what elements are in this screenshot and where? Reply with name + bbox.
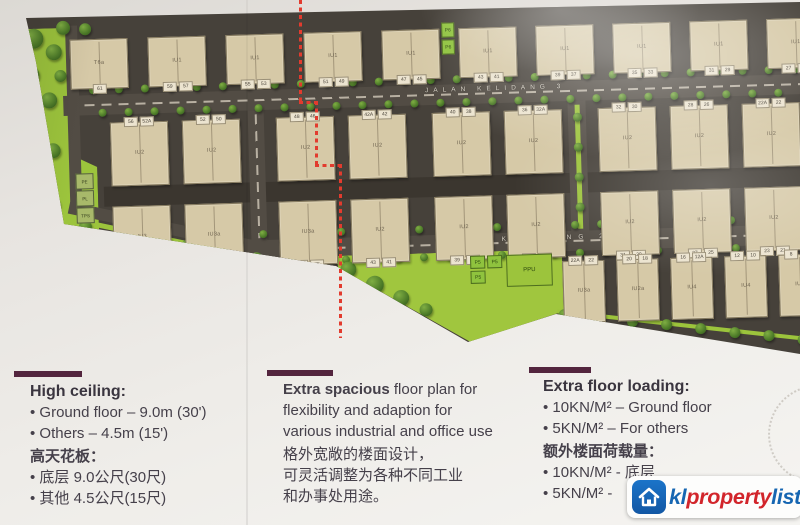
wm-list: list [771,485,800,509]
lot-number: 40 [446,107,460,117]
info-block-spacious: Extra spacious floor plan for flexibilit… [283,379,535,507]
lot-number: 29 [720,65,734,75]
lot-number: 32 [612,102,626,112]
lot-number: 49 [216,262,230,272]
building-unit: IU23937 [434,195,494,261]
lot-number: 42A [362,110,376,120]
median-tree [575,202,584,211]
median-tree [572,112,581,121]
phase-boundary-line [299,0,302,103]
lot-number: 22 [771,98,785,108]
roadside-tree [415,225,423,233]
building-unit: IU14341 [458,26,517,78]
roadside-tree [592,94,600,102]
lot-number: 39 [551,70,565,80]
building-unit: T6a61 [69,38,128,90]
boundary-tree [318,264,331,277]
p5-box: P5 [470,271,485,284]
lot-number-tags: 5149 [200,262,230,273]
phase-boundary-line [339,164,342,338]
building-unit: IU22826 [670,104,730,170]
lot-number-tags: 5553 [128,264,158,275]
building-unit: IU25652A [110,121,170,187]
lot-number: 33 [643,67,657,77]
roadside-tree [670,92,678,100]
park-tree [45,143,60,158]
building-type-label: IU3a [564,287,604,294]
roadside-tree [375,77,383,85]
lot-number: 52 [196,115,210,125]
building-type-label: IU1 [768,38,800,46]
accent-bar [529,367,591,373]
median-tree [573,142,582,151]
lot-number: 16 [676,252,690,262]
lot-number-tags: 22A22 [755,98,785,109]
lot-number: 51 [200,263,214,273]
roadside-tree [150,107,158,115]
lot-number-tags: 4341 [366,257,396,268]
building-unit: IU22725 [672,188,732,254]
lot-number: 22A [755,98,769,108]
lot-number: 30 [627,102,641,112]
park-tree [83,231,95,243]
lot-number-tags: 1210 [730,250,760,261]
building-unit: IU13937 [535,24,594,76]
building-unit: IU23230 [598,106,658,172]
accent-bar [267,370,333,376]
lot-number: 26 [699,100,713,110]
lot-number-tags: 4341 [474,72,504,83]
building-type-label: IU2 [184,147,240,155]
building-type-label: IU2 [506,137,562,145]
lot-number: 45 [310,259,324,269]
roadside-tree [141,84,149,92]
high-ceiling-cn-line: • 其他 4.5公尺(15尺) [30,488,270,509]
lot-number: 42 [378,109,392,119]
lot-number-tags: 3632A [518,105,548,116]
building-type-label: IU1 [460,48,516,56]
lot-number: 12 [730,251,744,261]
building-unit: IU41612A [670,257,714,320]
lot-number-tags: 42A42 [362,109,392,120]
klpropertylist-watermark: klpropertylist [627,476,800,518]
building-type-label: IU1 [305,52,361,60]
lot-number: 47 [294,260,308,270]
building-type-label: IU1 [227,54,283,62]
roadside-tree [332,102,340,110]
building-unit: IU2a2018 [616,258,660,321]
lot-number: 8 [784,249,798,259]
floor-loading-cn-title: 额外楼面荷载量： [543,441,793,462]
building-unit: IU15957 [147,36,206,88]
roadside-tree [696,91,704,99]
building-type-label: IU2 [508,221,564,229]
lot-number: 51 [319,77,333,87]
lot-number: 45 [413,74,427,84]
building-type-label: IU3 [114,233,170,241]
roadside-tree [98,109,106,117]
lot-number: 35 [627,68,641,78]
spacious-line: Extra spacious floor plan for [283,379,535,400]
roadside-tree [384,100,392,108]
lot-number: 37 [567,70,581,80]
lot-number-tags: 4745 [397,74,427,85]
floor-loading-line: • 5KN/M² – For others [543,418,793,439]
green-pocket-box: P6 [441,22,454,37]
building-unit: IU13533 [612,22,671,74]
lot-number-tags: 3533 [627,67,657,78]
spacious-rest: floor plan for [390,381,478,398]
roadside-tree [774,89,782,97]
lot-number: 18 [638,254,652,264]
building-unit: IU35553 [112,205,172,271]
roadside-tree [228,105,236,113]
park-tree [29,168,46,185]
lot-number-tags: 86 [784,249,800,260]
high-ceiling-line: • Others – 4.5m (15') [30,423,270,444]
building-type-label: IU2 [599,134,655,142]
high-ceiling-line: • Ground floor – 9.0m (30') [30,402,270,423]
building-type-label: IU3a [186,231,242,239]
lot-number-tags: 1612A [676,252,706,263]
boundary-tree [283,258,296,271]
park-tree [21,66,40,85]
building-type-label: IU2 [434,139,490,147]
roadside-tree [748,89,756,97]
building-unit: IU41210 [724,255,768,318]
building-unit: IU3a22A22 [562,260,606,323]
building-unit: IU15553 [225,33,284,85]
green-pocket-box: P6 [442,39,455,54]
lot-number: 53 [144,264,158,274]
spacious-line: various industrial and office use [283,421,535,442]
spacious-cn-line: 和办事处用途。 [283,486,535,507]
floor-loading-title: Extra floor loading: [543,376,793,397]
lot-number: 48 [290,112,304,122]
boundary-tree [249,252,262,265]
lot-number-tags: 2018 [622,254,652,265]
lot-number: 57 [179,81,193,91]
roadside-tree [410,99,418,107]
building-type-label: IU1 [614,43,670,51]
floor-loading-line: • 10KN/M² – Ground floor [543,397,793,418]
lot-number: 43 [474,72,488,82]
lot-number-tags: 4745 [294,259,324,270]
lot-number: 27 [781,63,795,73]
park-tree [34,219,48,233]
roadside-tree [618,93,626,101]
building-type-label: IU3a [280,228,336,236]
p5-box: P5 [487,255,502,268]
lot-number-tags: 3230 [612,102,642,113]
lot-number: 36 [518,105,532,115]
roadside-tree [722,90,730,98]
building-unit: IU242A42 [348,114,408,180]
building-unit: IU15149 [303,31,362,83]
roadside-tree [358,101,366,109]
boundary-tree [660,319,671,330]
lot-number: 59 [163,82,177,92]
building-type-label: IU1 [149,57,205,65]
park-facility-box: PL [76,190,94,207]
lot-number: 41 [490,72,504,82]
building-type-label: IU2 [436,223,492,231]
building-divider [141,209,144,267]
lot-number: 12A [692,252,706,262]
building-unit: IU24341 [350,198,410,264]
boundary-tree [763,330,774,341]
building-type-label: IU2 [746,214,800,222]
building-type-label: IU2 [352,226,408,234]
roadside-tree [493,223,501,231]
lot-number: 22A [568,256,582,266]
building-unit: IU23533 [506,193,566,259]
lot-number: 43 [366,258,380,268]
spacious-bold: Extra spacious [283,381,390,398]
lot-number: 61 [93,84,107,94]
lot-number-tags: 5250 [196,114,226,125]
park-tree [45,197,60,212]
high-ceiling-cn-title: 高天花板： [30,446,270,467]
lot-number: 50 [212,114,226,124]
info-block-high-ceiling: High ceiling: • Ground floor – 9.0m (30'… [30,381,270,509]
building-type-label: IU2a [618,285,658,292]
building-unit: IU24038 [432,111,492,177]
building-type-label: IU4 [780,281,800,288]
roadside-tree [280,103,288,111]
building-type-label: IU1 [537,45,593,53]
lot-number: 55 [128,265,142,275]
park-facility-box: TPS [76,207,94,224]
roadside-tree [124,108,132,116]
building-type-label: IU2 [743,130,799,138]
boundary-tree [695,323,706,334]
p5-box: P5 [470,256,485,269]
lot-number-tags: 5149 [319,76,349,87]
brochure-fold-crease [246,0,248,525]
building-unit: IU486 [778,254,800,317]
roadside-tree [462,98,470,106]
lot-number-tags: 2826 [683,100,713,111]
building-unit: IU14745 [381,29,440,81]
roadside-tree [176,106,184,114]
lot-number: 41 [382,257,396,267]
phase-boundary-line [315,101,318,167]
ppu-box: PPU [506,254,553,287]
building-unit: IU222A22 [742,102,800,168]
lot-number-tags: 61 [93,84,107,94]
lot-number: 28 [683,100,697,110]
building-type-label: IU4 [672,284,712,291]
lot-number: 22 [584,255,598,265]
lot-number-tags: 22A22 [568,255,598,266]
wm-kl: kl [669,485,686,509]
roadside-tree [514,96,522,104]
lot-number: 32A [534,105,548,115]
roadside-tree [436,99,444,107]
spacious-cn-line: 可灵活调整为各种不同工业 [283,465,535,486]
building-type-label: IU2 [602,218,658,226]
building-type-label: IU2 [350,142,406,150]
site-plan: JALAN KELIDANG 3JALAN KELIDANG 2T6a61IU1… [0,0,800,362]
lot-number-tags: 4038 [446,107,476,118]
lot-number: 38 [462,107,476,117]
spacious-cn-line: 格外宽敞的楼面设计， [283,444,535,465]
building-type-label: IU2 [674,216,730,224]
lot-number-tags: 3129 [704,65,734,76]
lot-number: 49 [335,76,349,86]
lot-number-tags: 2725 [781,63,800,74]
lot-number: 52A [140,116,154,126]
lot-number-tags: 3937 [551,70,581,81]
building-unit: IU3a4745 [278,200,338,266]
park-tree [25,116,44,135]
lot-number: 47 [397,75,411,85]
building-type-label: IU2 [112,149,168,157]
lot-number: 56 [124,117,138,127]
lot-number: 20 [622,254,636,264]
wm-property: property [686,485,771,509]
building-unit: IU23632A [504,109,564,175]
building-type-label: IU2 [278,144,334,152]
roadside-tree [540,96,548,104]
high-ceiling-title: High ceiling: [30,381,270,402]
building-type-label: T6a [71,59,127,67]
lot-number-tags: 5652A [124,116,154,127]
park-facility-box: PE [75,173,93,190]
building-unit: IU25250 [182,119,242,185]
buffer-tree [340,289,353,302]
house-icon [632,480,666,514]
roadside-tree [488,97,496,105]
building-type-label: IU2 [671,132,727,140]
building-unit: IU23129 [600,190,660,256]
roadside-tree [644,92,652,100]
buffer-tree [419,303,432,316]
high-ceiling-cn-line: • 底层 9.0公尺(30尺) [30,467,270,488]
boundary-tree [729,326,740,337]
median-tree [574,172,583,181]
lot-number: 39 [450,255,464,265]
building-unit: IU13129 [689,20,748,72]
lot-number: 31 [704,65,718,75]
lot-number: 53 [257,79,271,89]
roadside-tree [219,82,227,90]
building-type-label: IU1 [691,41,747,49]
building-type-label: IU4 [726,282,766,289]
watermark-text: klpropertylist [669,485,800,510]
park-tree [79,23,91,35]
site-plan-canvas: JALAN KELIDANG 3JALAN KELIDANG 2T6a61IU1… [0,0,800,402]
phase-boundary-line [315,164,342,167]
park-tree [60,225,73,238]
lot-number: 10 [746,250,760,260]
building-type-label: IU1 [383,50,439,58]
spacious-line: flexibility and adaption for [283,400,535,421]
building-unit: IU3a5149 [184,203,244,269]
lot-number-tags: 5957 [163,81,193,92]
accent-bar [14,371,82,377]
roadside-tree [202,106,210,114]
building-unit: IU12725 [766,17,800,69]
building-unit: IU24846 [276,116,336,182]
building-unit: IU22321 [744,186,800,252]
